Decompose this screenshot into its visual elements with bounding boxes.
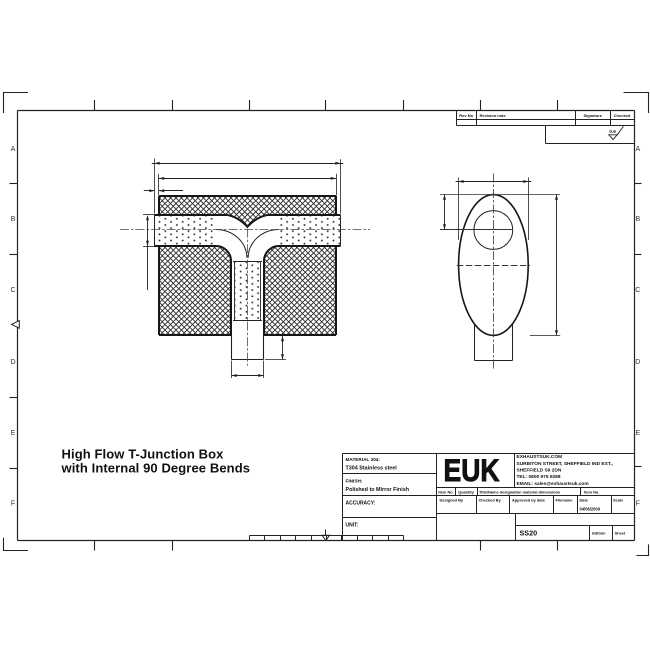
svg-text:E: E (11, 430, 16, 437)
svg-text:Scale: Scale (613, 498, 624, 503)
svg-text:FINISH:: FINISH: (346, 478, 363, 483)
svg-text:UNIT:: UNIT: (346, 522, 359, 528)
svg-text:F: F (636, 501, 640, 508)
svg-text:MATERIAL 304:: MATERIAL 304: (346, 457, 381, 462)
svg-text:ACCURACY:: ACCURACY: (346, 501, 376, 507)
svg-text:Date: Date (580, 498, 589, 503)
svg-text:Item No.: Item No. (584, 490, 599, 495)
svg-text:TEL: 0800 975 9288: TEL: 0800 975 9288 (517, 474, 561, 480)
svg-text:Rev No: Rev No (459, 113, 473, 118)
svg-text:Polished to Mirror Finish: Polished to Mirror Finish (346, 487, 410, 493)
svg-text:C: C (10, 287, 15, 294)
svg-text:A: A (635, 146, 640, 153)
svg-text:04/06/2009: 04/06/2009 (580, 506, 601, 511)
svg-text:0.6: 0.6 (609, 129, 616, 134)
svg-text:F: F (11, 501, 15, 508)
svg-text:Sheet: Sheet (615, 530, 626, 535)
svg-text:EMAIL: sales@exhaustsuk.com: EMAIL: sales@exhaustsuk.com (517, 481, 589, 487)
svg-text:T304 Stainless steel: T304 Stainless steel (346, 466, 398, 472)
svg-text:High Flow T-Junction Box: High Flow T-Junction Box (62, 446, 225, 461)
svg-text:Title/Name designation materia: Title/Name designation material dimensio… (479, 490, 560, 495)
svg-text:Quantity: Quantity (458, 490, 475, 495)
svg-text:SHEFFIELD S9 2DN: SHEFFIELD S9 2DN (517, 468, 562, 474)
svg-text:with Internal 90 Degree Bends: with Internal 90 Degree Bends (61, 461, 251, 476)
svg-text:C: C (635, 287, 640, 294)
svg-text:Edition: Edition (592, 530, 606, 535)
svg-text:Filename: Filename (556, 498, 574, 503)
svg-text:A: A (11, 146, 16, 153)
svg-text:SS20: SS20 (520, 529, 538, 538)
svg-text:Checked By: Checked By (479, 498, 502, 503)
svg-text:E: E (635, 430, 640, 437)
svg-text:B: B (11, 216, 16, 223)
svg-text:Designed By: Designed By (440, 498, 464, 503)
svg-text:Item No: Item No (438, 490, 453, 495)
svg-text:EXHAUSTSUK.COM: EXHAUSTSUK.COM (517, 454, 563, 460)
svg-text:Checked: Checked (614, 113, 631, 118)
svg-text:D: D (635, 359, 640, 366)
svg-text:D: D (10, 359, 15, 366)
svg-text:Signature: Signature (583, 113, 602, 118)
svg-text:B: B (635, 216, 640, 223)
svg-text:Approved by date: Approved by date (512, 498, 546, 503)
svg-text:Revision note: Revision note (480, 113, 507, 118)
svg-text:EUK: EUK (444, 452, 500, 488)
svg-text:SURBITON STREET, SHEFFIELD IND: SURBITON STREET, SHEFFIELD IND EST., (517, 461, 614, 467)
